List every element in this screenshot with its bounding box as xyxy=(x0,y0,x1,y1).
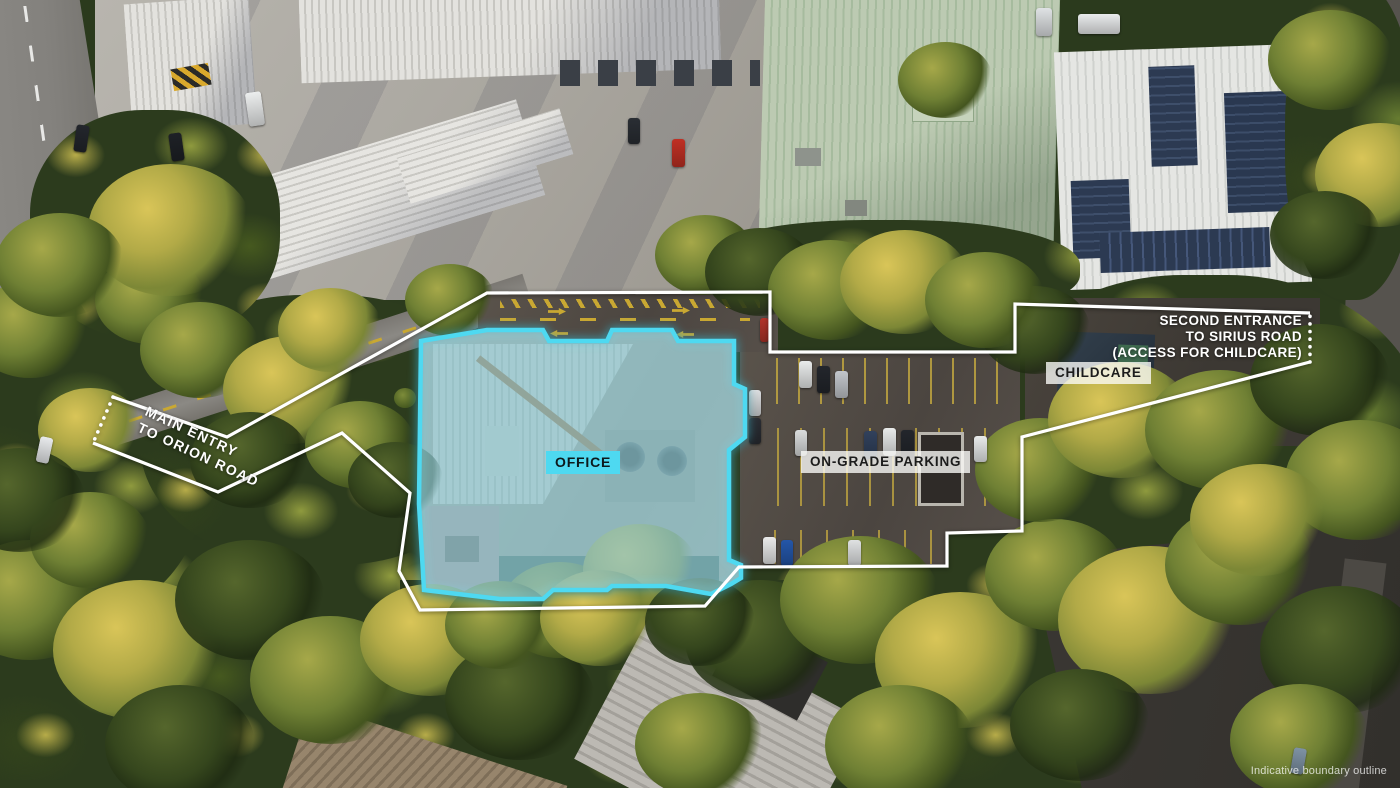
main-entry-dotted-line xyxy=(93,397,113,443)
second-entrance-line2: TO SIRIUS ROAD xyxy=(1112,329,1302,345)
second-entrance-label: SECOND ENTRANCE TO SIRIUS ROAD (ACCESS F… xyxy=(1112,313,1302,361)
childcare-label: CHILDCARE xyxy=(1046,362,1151,384)
boundary-footnote: Indicative boundary outline xyxy=(1251,765,1387,777)
second-entrance-line1: SECOND ENTRANCE xyxy=(1112,313,1302,329)
aerial-site-photo: MAIN ENTRY TO ORION ROAD OFFICE ON-GRADE… xyxy=(0,0,1400,788)
second-entrance-line3: (ACCESS FOR CHILDCARE) xyxy=(1112,345,1302,361)
parking-label: ON-GRADE PARKING xyxy=(801,451,970,473)
site-boundary-svg xyxy=(0,0,1400,788)
office-label: OFFICE xyxy=(546,451,620,474)
